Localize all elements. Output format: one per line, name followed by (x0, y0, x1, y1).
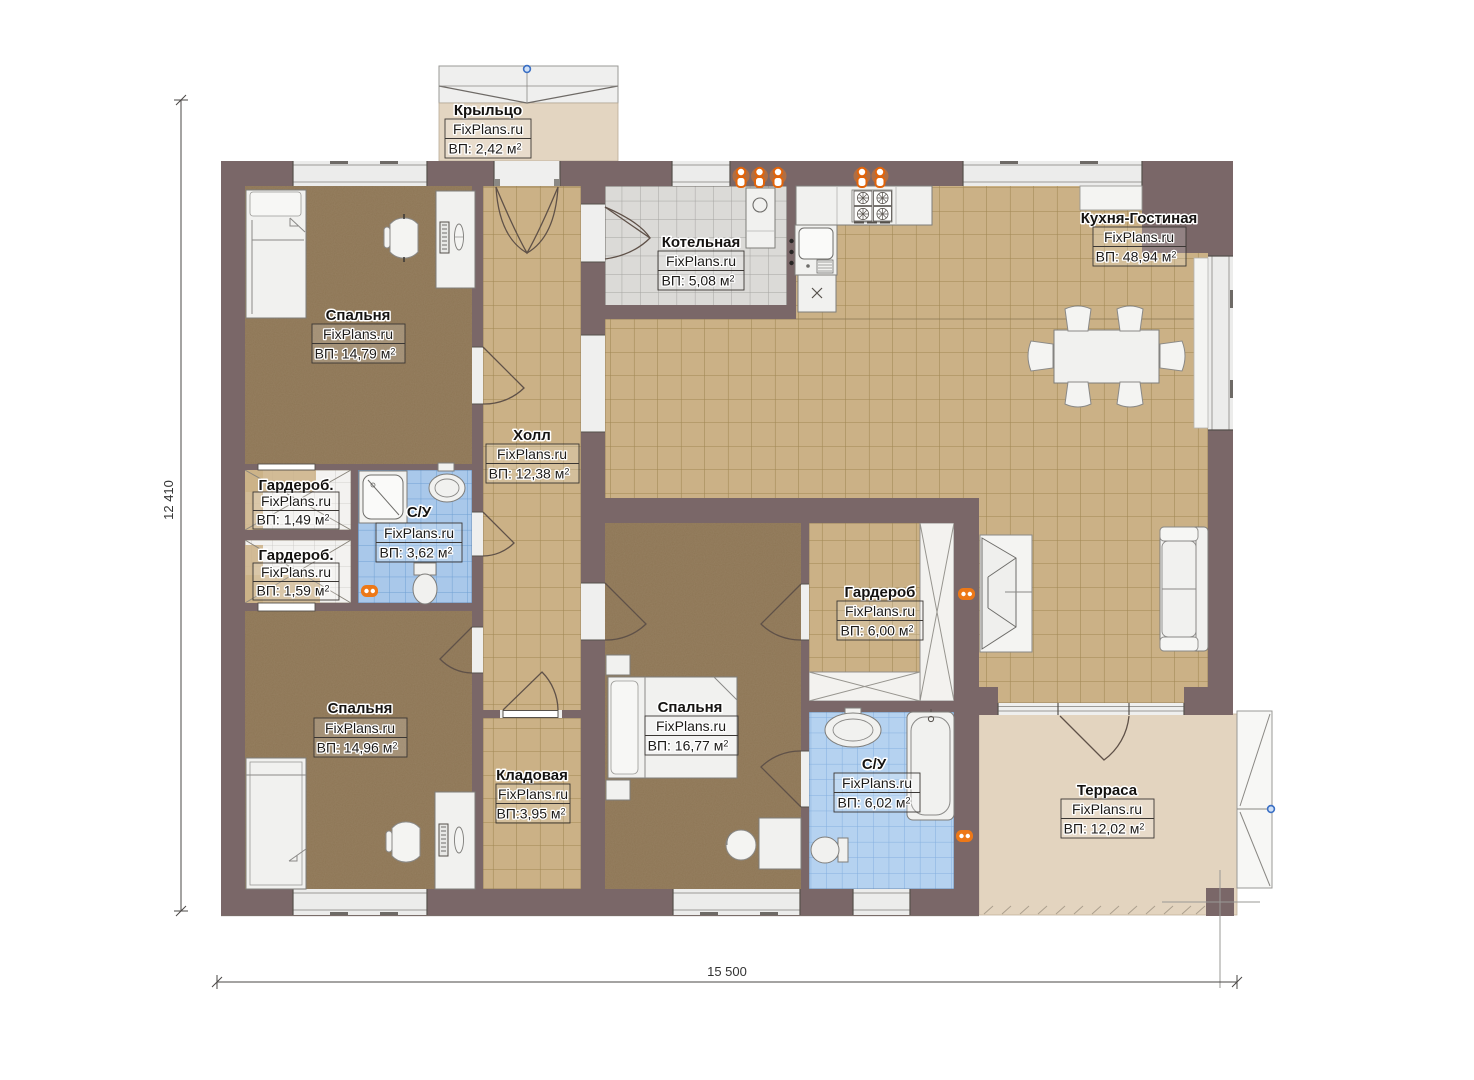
svg-text:Спальня: Спальня (326, 307, 391, 324)
svg-text:FixPlans.ru: FixPlans.ru (1072, 801, 1142, 817)
svg-text:FixPlans.ru: FixPlans.ru (842, 775, 912, 791)
svg-text:FixPlans.ru: FixPlans.ru (497, 446, 567, 462)
svg-text:ВП: 3,62 м2: ВП: 3,62 м2 (380, 545, 453, 561)
svg-text:Кухня-Гостиная: Кухня-Гостиная (1081, 210, 1198, 227)
svg-text:ВП: 5,08 м2: ВП: 5,08 м2 (662, 273, 735, 289)
svg-text:FixPlans.ru: FixPlans.ru (384, 525, 454, 541)
svg-text:Гардероб.: Гардероб. (258, 477, 333, 494)
svg-text:С/У: С/У (862, 756, 887, 773)
svg-text:Терраса: Терраса (1077, 782, 1138, 799)
svg-text:FixPlans.ru: FixPlans.ru (845, 603, 915, 619)
svg-text:15 500: 15 500 (707, 964, 747, 979)
svg-text:FixPlans.ru: FixPlans.ru (1104, 229, 1174, 245)
svg-text:ВП:3,95 м2: ВП:3,95 м2 (496, 806, 565, 822)
svg-text:С/У: С/У (407, 504, 432, 521)
svg-text:Гардероб: Гардероб (845, 584, 916, 601)
svg-text:FixPlans.ru: FixPlans.ru (323, 326, 393, 342)
svg-text:Холл: Холл (513, 427, 551, 444)
svg-text:ВП: 6,00 м2: ВП: 6,00 м2 (841, 623, 914, 639)
svg-text:FixPlans.ru: FixPlans.ru (666, 253, 736, 269)
svg-text:FixPlans.ru: FixPlans.ru (261, 493, 331, 509)
svg-text:ВП: 14,79 м2: ВП: 14,79 м2 (315, 346, 396, 362)
svg-text:FixPlans.ru: FixPlans.ru (498, 786, 568, 802)
svg-text:FixPlans.ru: FixPlans.ru (656, 718, 726, 734)
svg-text:Кладовая: Кладовая (496, 767, 568, 784)
svg-text:ВП: 16,77 м2: ВП: 16,77 м2 (648, 738, 729, 754)
svg-text:Котельная: Котельная (662, 234, 741, 251)
svg-text:ВП: 1,59 м2: ВП: 1,59 м2 (257, 583, 330, 599)
svg-text:Спальня: Спальня (328, 700, 393, 717)
svg-text:ВП: 12,02 м2: ВП: 12,02 м2 (1064, 821, 1145, 837)
svg-text:ВП: 12,38 м2: ВП: 12,38 м2 (489, 466, 570, 482)
svg-text:Спальня: Спальня (658, 699, 723, 716)
svg-text:ВП: 6,02 м2: ВП: 6,02 м2 (838, 795, 911, 811)
svg-text:ВП: 1,49 м2: ВП: 1,49 м2 (257, 512, 330, 528)
svg-text:FixPlans.ru: FixPlans.ru (261, 564, 331, 580)
svg-text:FixPlans.ru: FixPlans.ru (325, 720, 395, 736)
svg-text:ВП: 2,42 м2: ВП: 2,42 м2 (449, 141, 522, 157)
svg-text:Крыльцо: Крыльцо (454, 102, 522, 119)
svg-text:Гардероб.: Гардероб. (258, 547, 333, 564)
svg-text:ВП: 14,96 м2: ВП: 14,96 м2 (317, 740, 398, 756)
svg-text:12 410: 12 410 (161, 480, 176, 520)
svg-text:FixPlans.ru: FixPlans.ru (453, 121, 523, 137)
svg-text:ВП: 48,94 м2: ВП: 48,94 м2 (1096, 249, 1177, 265)
